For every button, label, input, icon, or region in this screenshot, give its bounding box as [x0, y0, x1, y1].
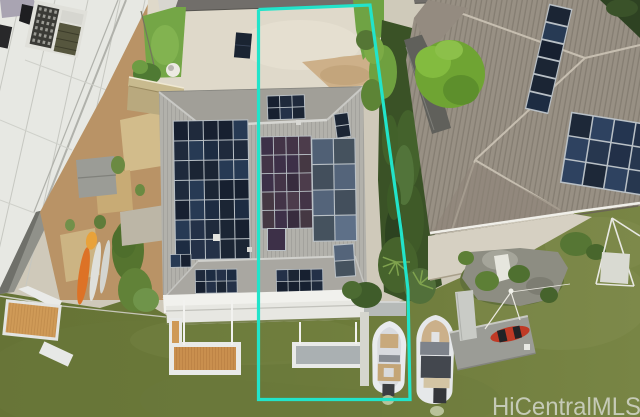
svg-text:HiCentralMLS: HiCentralMLS — [492, 393, 640, 417]
